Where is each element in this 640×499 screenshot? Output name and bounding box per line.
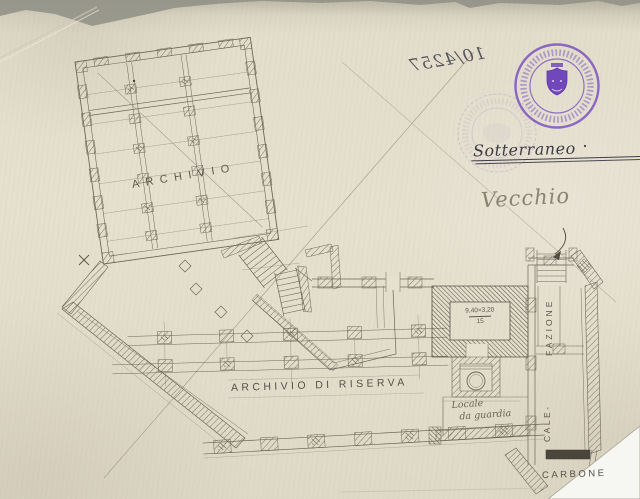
room-label-fazione: FAZIONE bbox=[544, 286, 554, 356]
room-dimension-note: 9,40×3,20 15 bbox=[448, 305, 513, 328]
heating-rooms bbox=[505, 228, 603, 494]
column-base-diamonds bbox=[179, 260, 253, 342]
scanned-floorplan-page: 10/4257 Sotterraneo Vecchio ARCHIVIO ARC… bbox=[0, 0, 640, 499]
room-label-carbone: CARBONE bbox=[542, 468, 607, 481]
staircase-secondary bbox=[274, 264, 315, 318]
shaft bbox=[452, 357, 500, 397]
entry-stairs bbox=[526, 248, 577, 283]
ink-speck bbox=[133, 80, 135, 82]
room-label-cale: CALE- bbox=[542, 392, 552, 442]
paper-bottom-edge bbox=[340, 488, 548, 492]
age-label-vecchio: Vecchio bbox=[480, 184, 570, 213]
stamp bbox=[516, 45, 599, 128]
dimension-denominator: 15 bbox=[469, 315, 491, 326]
wing-archivio bbox=[74, 36, 280, 264]
well-circle bbox=[467, 372, 485, 390]
paper-crease bbox=[0, 7, 99, 62]
dark-wall-bar bbox=[546, 450, 590, 459]
crown-icon bbox=[551, 63, 563, 67]
room-label-locale-da-guardia: Locale da guardia bbox=[451, 396, 512, 425]
